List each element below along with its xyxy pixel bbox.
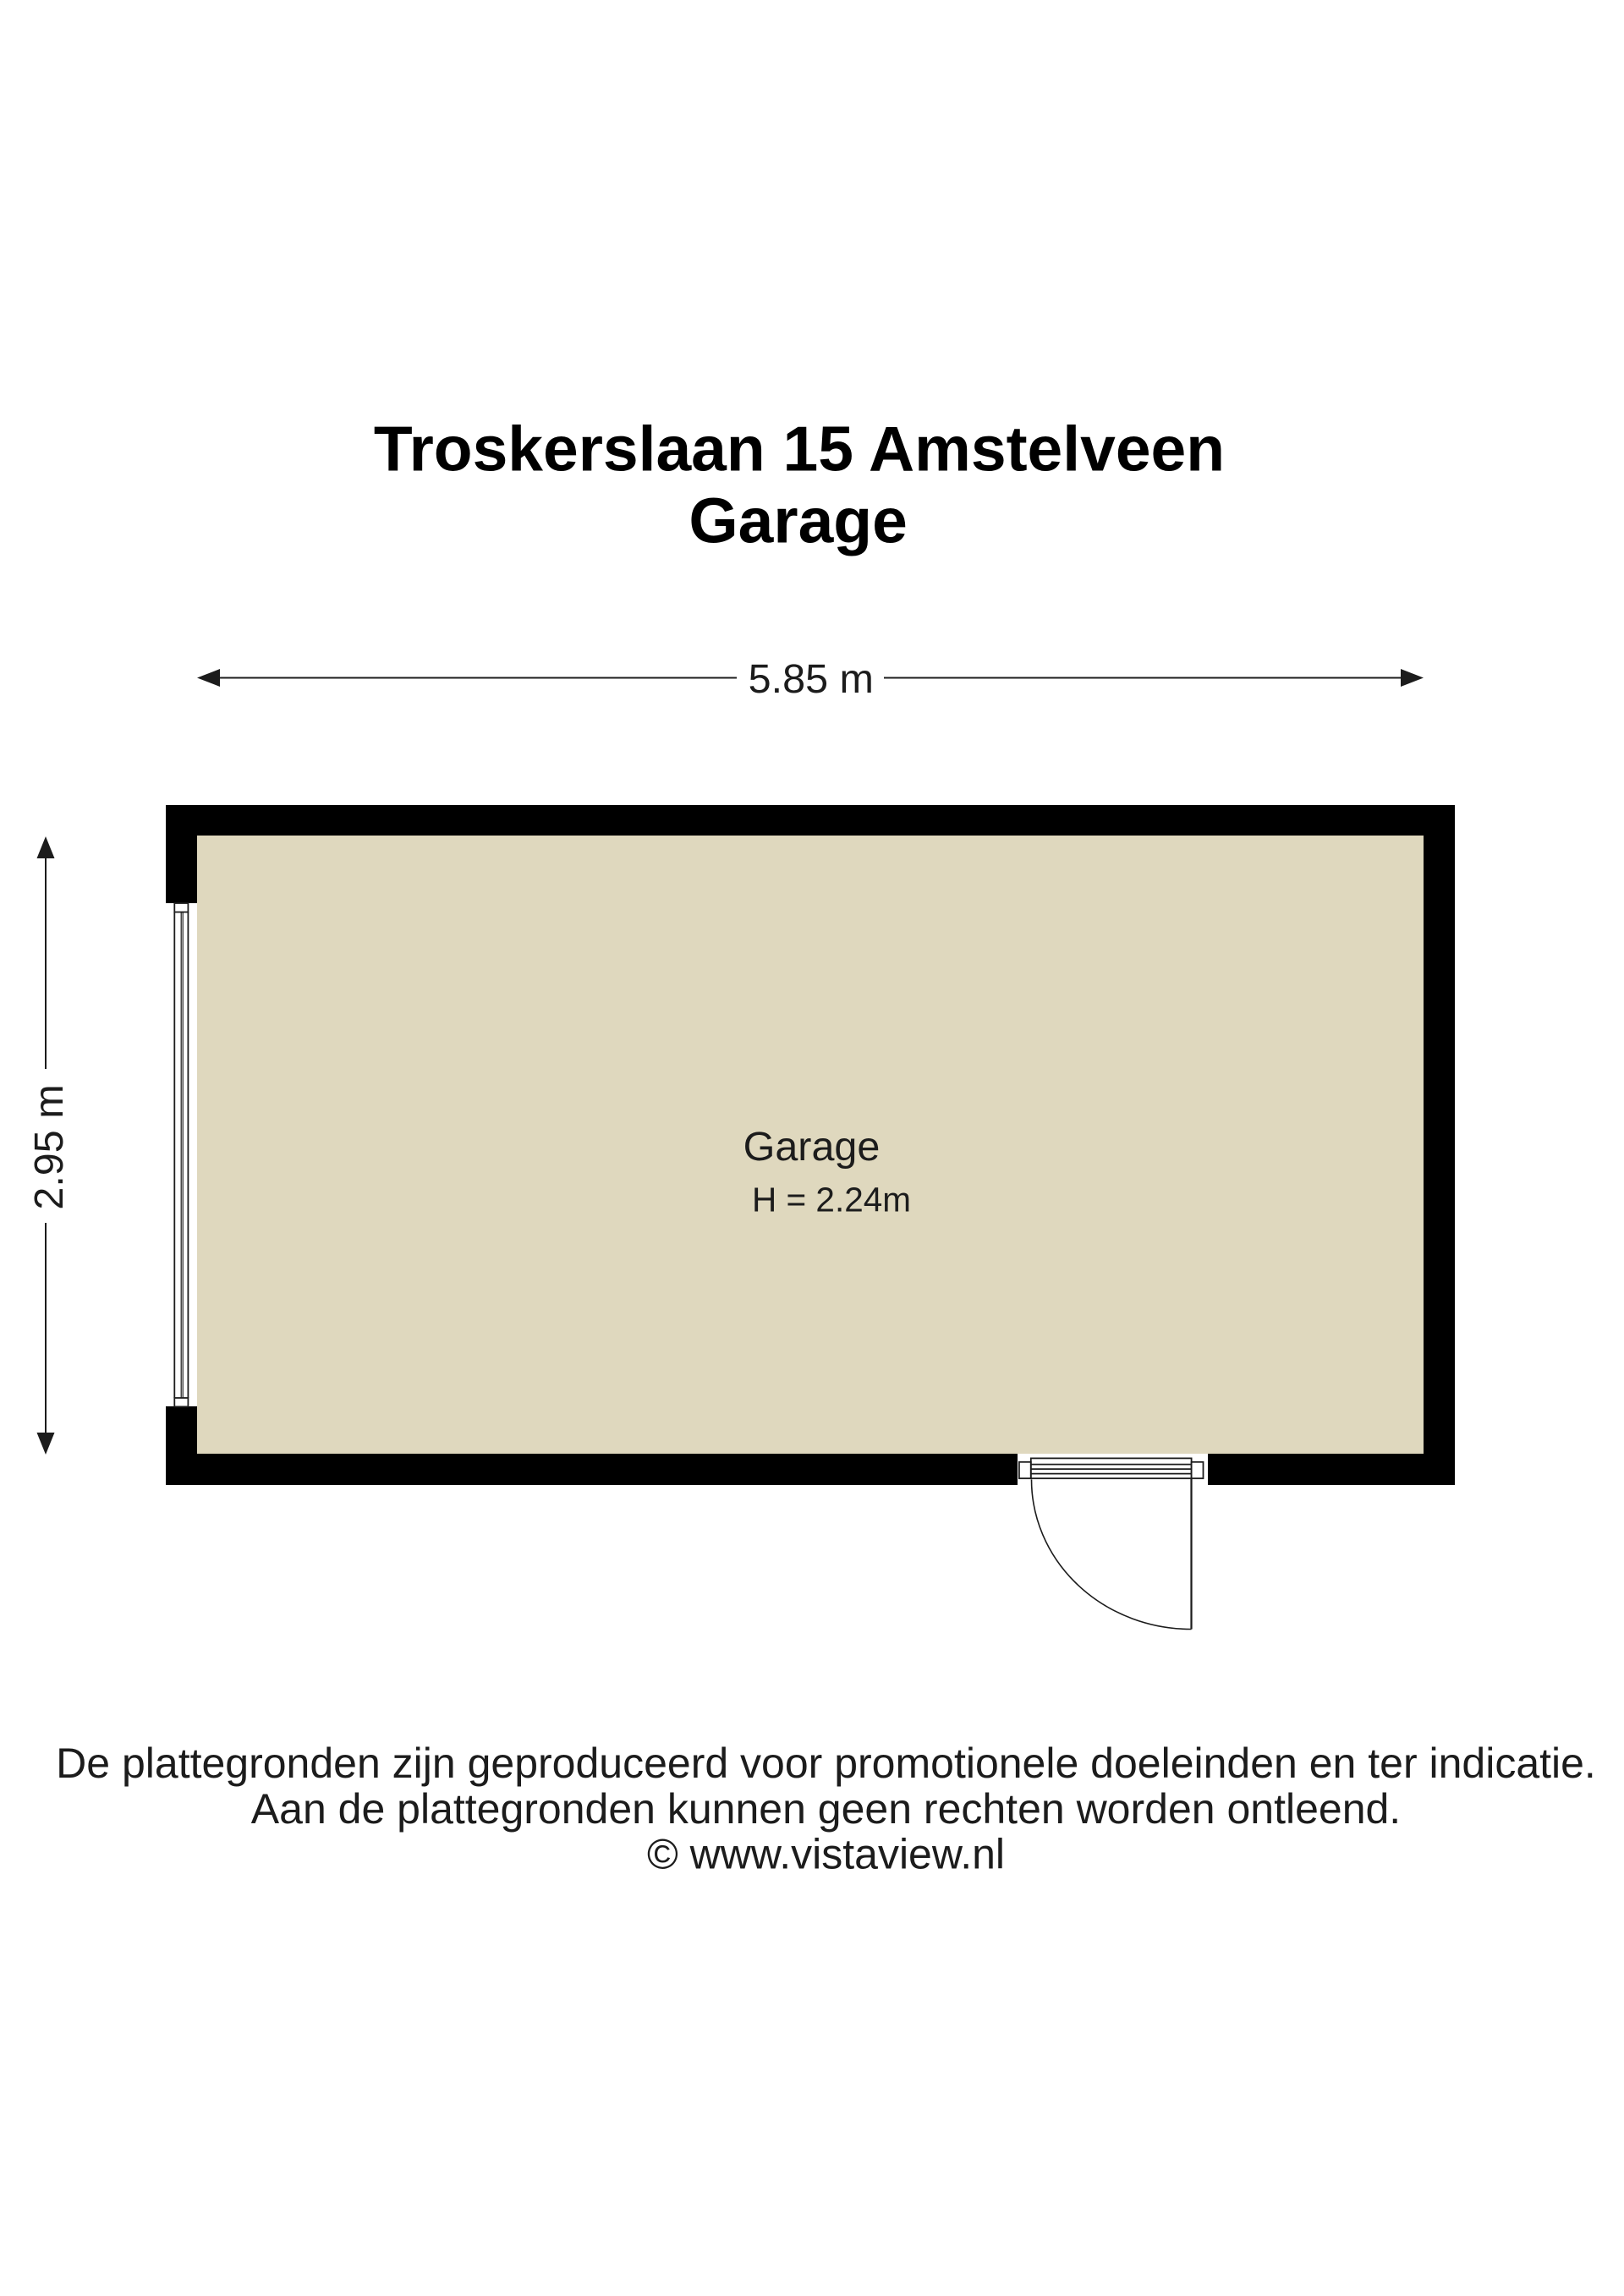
- svg-text:© www.vistaview.nl: © www.vistaview.nl: [647, 1831, 1005, 1878]
- svg-text:5.85 m: 5.85 m: [749, 656, 874, 702]
- svg-text:Aan de plattegronden kunnen ge: Aan de plattegronden kunnen geen rechten…: [251, 1785, 1401, 1833]
- svg-text:De plattegronden zijn geproduc: De plattegronden zijn geproduceerd voor …: [56, 1740, 1596, 1787]
- svg-text:2.95 m: 2.95 m: [26, 1084, 72, 1209]
- svg-text:Garage: Garage: [743, 1124, 881, 1170]
- svg-text:H = 2.24m: H = 2.24m: [752, 1181, 911, 1219]
- svg-text:Troskerslaan 15 Amstelveen: Troskerslaan 15 Amstelveen: [374, 414, 1225, 485]
- svg-text:Garage: Garage: [689, 485, 907, 556]
